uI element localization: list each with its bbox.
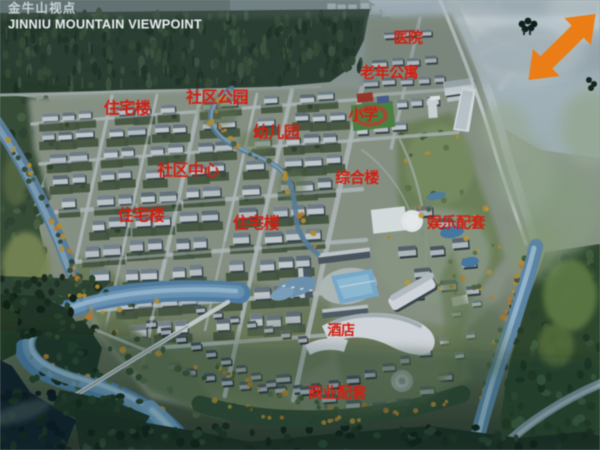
- svg-text:老年公寓: 老年公寓: [359, 64, 419, 82]
- svg-text:小学: 小学: [348, 106, 378, 124]
- svg-text:金牛山视点: 金牛山视点: [7, 1, 77, 16]
- svg-text:酒店: 酒店: [328, 322, 355, 338]
- svg-text:商业配套: 商业配套: [308, 384, 368, 402]
- svg-text:医院: 医院: [393, 29, 423, 47]
- svg-text:住宅楼: 住宅楼: [233, 214, 280, 233]
- svg-text:住宅楼: 住宅楼: [118, 206, 165, 225]
- svg-text:JINNIU MOUNTAIN VIEWPOINT: JINNIU MOUNTAIN VIEWPOINT: [8, 17, 202, 32]
- svg-text:住宅楼: 住宅楼: [104, 99, 151, 118]
- svg-text:社区公园: 社区公园: [185, 88, 249, 107]
- svg-text:综合楼: 综合楼: [335, 169, 379, 187]
- svg-text:娱乐配套: 娱乐配套: [427, 214, 487, 232]
- svg-text:社区中心: 社区中心: [156, 161, 220, 180]
- svg-text:幼儿园: 幼儿园: [253, 123, 300, 142]
